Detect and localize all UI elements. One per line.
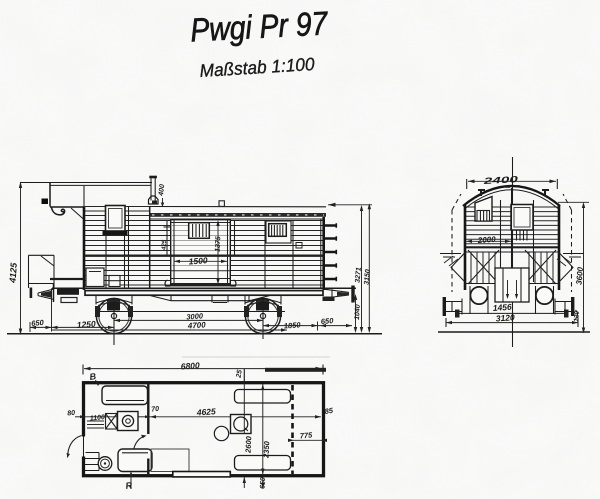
svg-text:425: 425 (161, 239, 168, 251)
svg-text:400: 400 (158, 184, 166, 197)
svg-text:3120: 3120 (495, 312, 515, 323)
svg-text:1250: 1250 (76, 319, 96, 330)
svg-text:4625: 4625 (195, 406, 216, 417)
svg-text:6800: 6800 (180, 360, 200, 371)
svg-text:4700: 4700 (187, 320, 207, 330)
svg-text:2600: 2600 (243, 435, 253, 454)
svg-text:2400: 2400 (482, 174, 518, 186)
svg-text:650: 650 (260, 477, 268, 489)
svg-text:1456: 1456 (492, 302, 512, 313)
svg-text:1100: 1100 (90, 414, 106, 422)
svg-text:3600: 3600 (575, 266, 586, 285)
svg-text:70: 70 (151, 406, 160, 414)
svg-text:1040: 1040 (354, 304, 362, 320)
svg-text:1500: 1500 (188, 255, 208, 266)
svg-text:650: 650 (31, 318, 45, 328)
svg-text:80: 80 (67, 410, 76, 418)
svg-text:650: 650 (321, 316, 335, 326)
svg-text:1850: 1850 (284, 320, 302, 330)
svg-text:4125: 4125 (7, 261, 19, 284)
svg-text:775: 775 (299, 430, 313, 440)
svg-text:2000: 2000 (477, 235, 497, 245)
svg-text:3150: 3150 (364, 269, 372, 285)
svg-text:Pwgi Pr 97: Pwgi Pr 97 (189, 4, 329, 48)
svg-text:1375: 1375 (215, 236, 223, 252)
svg-text:2350: 2350 (261, 440, 271, 459)
svg-text:3271: 3271 (355, 267, 363, 283)
